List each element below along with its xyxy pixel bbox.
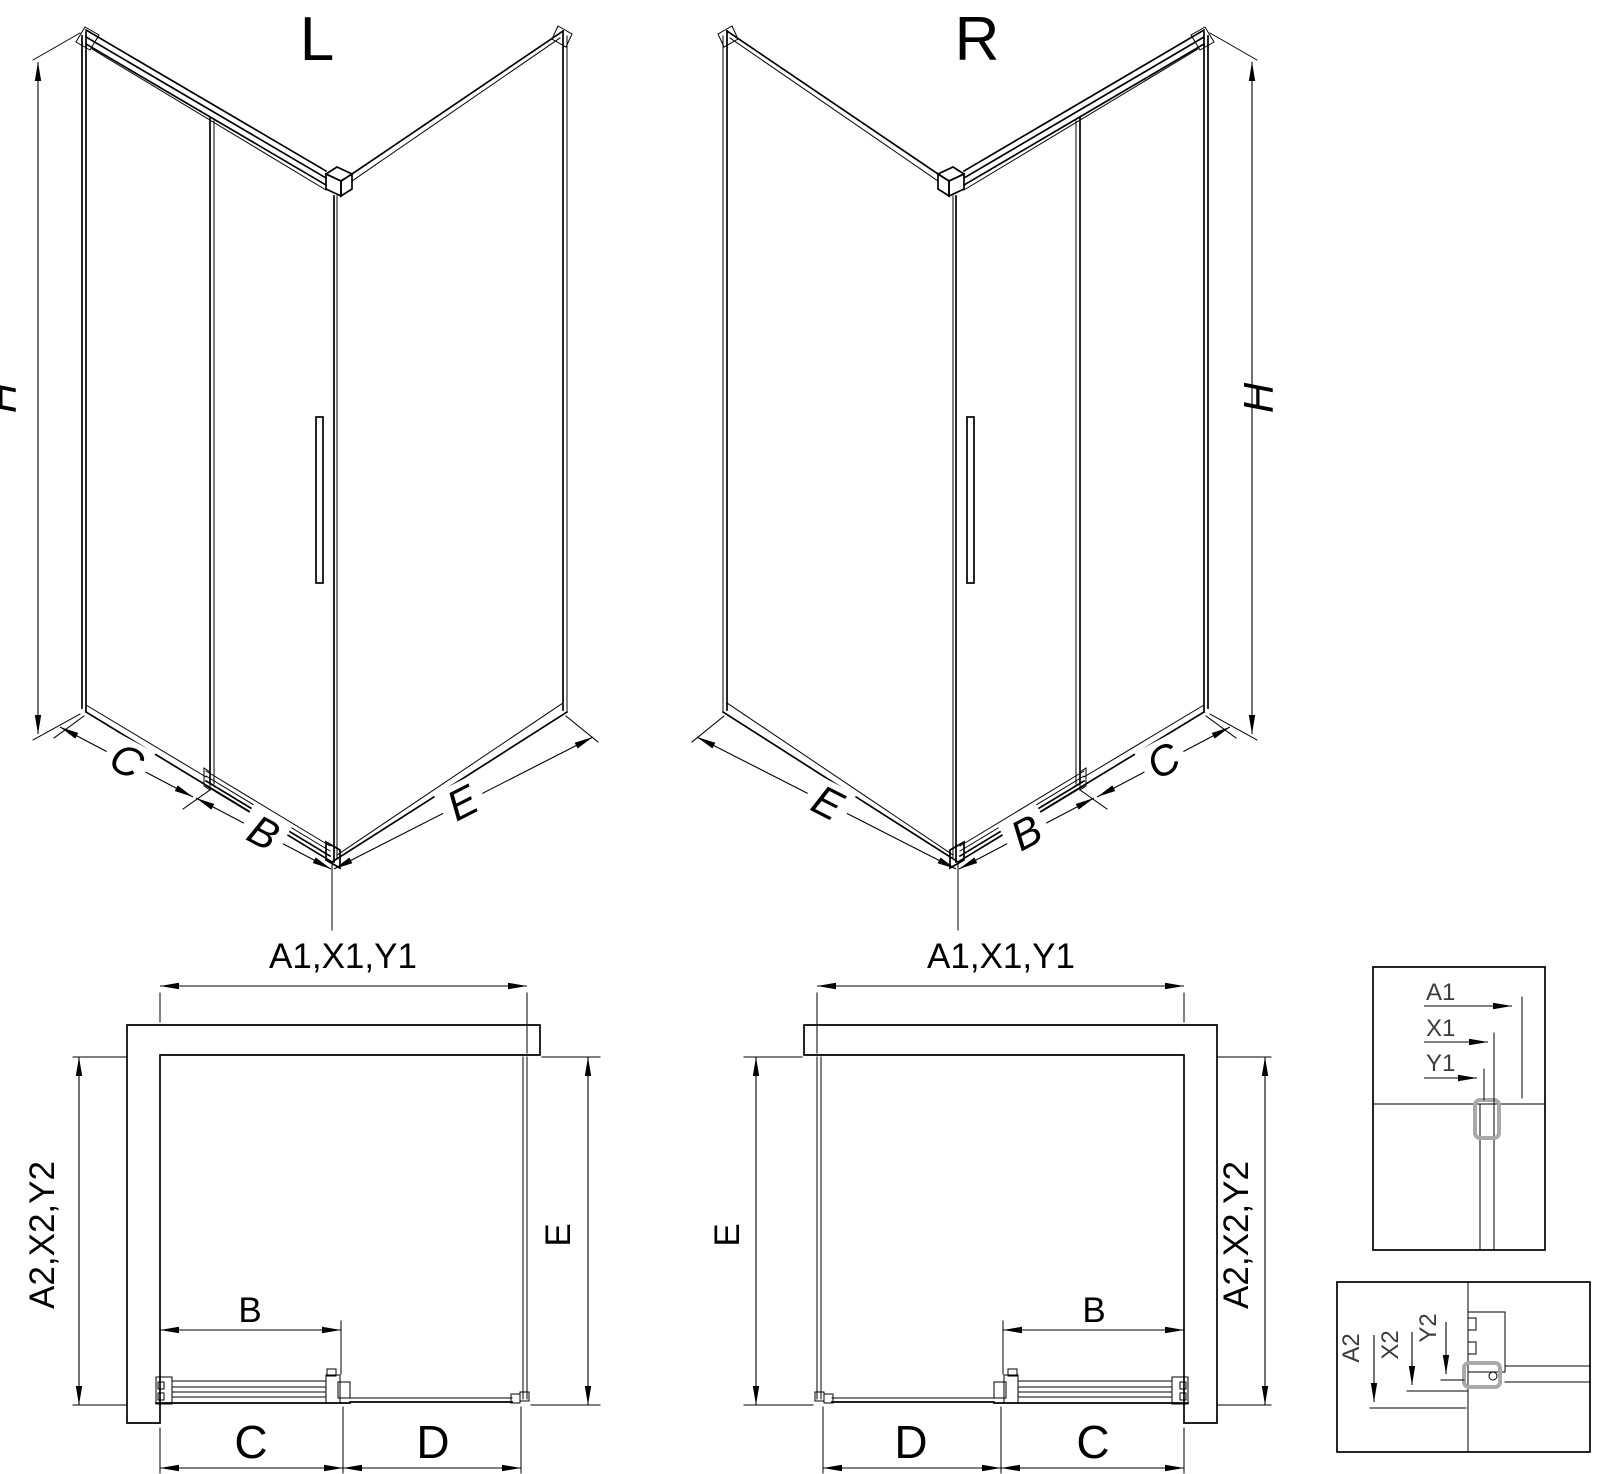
iso-left-title: L (300, 5, 334, 74)
detail-label-a1: A1 (1426, 979, 1455, 1006)
iso-right-dim-e: E (797, 772, 858, 834)
wall-section-hatch (1480, 1104, 1494, 1250)
detail-label-a2: A2 (1338, 1333, 1365, 1362)
detail-label-y2: Y2 (1415, 1313, 1442, 1342)
screw-detail (1489, 1372, 1497, 1380)
plan-door-track (156, 1369, 520, 1404)
iso-right-dim-c: C (1133, 730, 1194, 792)
detail-label-y1: Y1 (1426, 1050, 1455, 1077)
iso-left-dim-h: H (0, 382, 25, 413)
detail-a2-profile: A2 X2 Y2 (1337, 1282, 1590, 1452)
iso-left-linework (33, 26, 598, 930)
iso-right-dim-b: B (996, 802, 1057, 864)
iso-left-dim-c: C (96, 730, 157, 792)
detail-label-x1: X1 (1426, 1015, 1455, 1042)
iso-left-dim-e: E (432, 772, 493, 834)
dim-cb-lines (54, 716, 332, 930)
bottom-clamp-profile (1464, 1363, 1500, 1387)
detail-label-x2: X2 (1377, 1330, 1404, 1359)
plan-left-dim-a2: A2,X2,Y2 (23, 1161, 62, 1309)
plan-right-dim-d: D (894, 1416, 927, 1468)
dim-h-lines (33, 33, 80, 740)
door-handle (316, 417, 323, 583)
detail-a1-profile: A1 X1 Y1 (1373, 967, 1545, 1250)
plan-right-dim-c: C (1076, 1416, 1109, 1468)
iso-right-linework (692, 26, 1257, 930)
plan-right-wall-hatch (804, 1025, 1217, 1423)
plan-right-dim-a1: A1,X1,Y1 (927, 937, 1075, 976)
iso-left-dim-b: B (233, 802, 294, 864)
plan-left-dim-a1: A1,X1,Y1 (269, 937, 417, 976)
corner-block (326, 167, 352, 196)
plan-right-dim-e: E (708, 1223, 747, 1246)
plan-left-dim-d: D (416, 1416, 449, 1468)
plan-left-dim-e: E (539, 1223, 578, 1246)
plan-right-dim-a2: A2,X2,Y2 (1217, 1161, 1256, 1309)
plan-right-linework (744, 986, 1271, 1473)
plan-left-linework (73, 986, 600, 1473)
plan-left-wall-hatch (127, 1025, 540, 1423)
plan-right-dim-b: B (1082, 1291, 1105, 1330)
iso-right-dim-h: H (1235, 382, 1282, 413)
plan-left-dim-c: C (234, 1416, 267, 1468)
plan-left-dim-b: B (238, 1291, 261, 1330)
technical-drawing-page: L H C B E R H E B C (0, 0, 1600, 1474)
drawing-canvas: L H C B E R H E B C (0, 0, 1600, 1474)
iso-right-title: R (955, 5, 1000, 74)
glass-clamp-profile (1475, 1100, 1499, 1138)
